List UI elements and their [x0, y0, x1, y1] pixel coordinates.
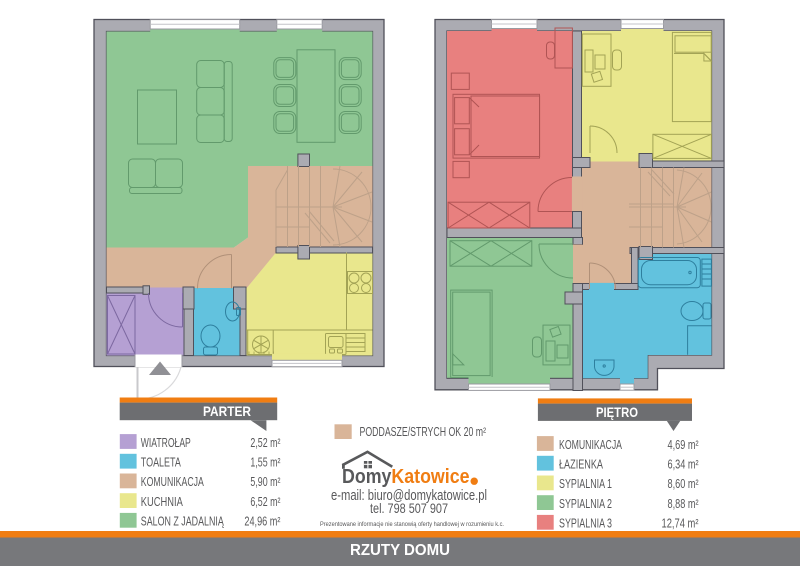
svg-text:PARTER: PARTER — [203, 403, 251, 419]
svg-text:6,34 m²: 6,34 m² — [668, 457, 700, 472]
svg-text:KUCHNIA: KUCHNIA — [141, 494, 183, 509]
svg-text:DomyKatowice: DomyKatowice — [342, 466, 470, 488]
svg-text:KOMUNIKACJA: KOMUNIKACJA — [141, 474, 204, 489]
svg-text:8,60 m²: 8,60 m² — [668, 476, 700, 491]
svg-text:Prezentowane informacje nie st: Prezentowane informacje nie stanowią ofe… — [320, 521, 504, 528]
svg-text:4,69 m²: 4,69 m² — [668, 437, 700, 452]
svg-text:SYPIALNIA 2: SYPIALNIA 2 — [559, 496, 612, 511]
svg-text:2,52 m²: 2,52 m² — [250, 435, 281, 450]
svg-text:24,96 m²: 24,96 m² — [244, 514, 281, 529]
svg-text:8,88 m²: 8,88 m² — [668, 496, 700, 511]
svg-text:SYPIALNIA 3: SYPIALNIA 3 — [559, 516, 612, 531]
svg-text:ŁAZIENKA: ŁAZIENKA — [559, 457, 603, 472]
svg-text:1,55 m²: 1,55 m² — [250, 455, 281, 470]
svg-text:SYPIALNIA 1: SYPIALNIA 1 — [559, 476, 612, 491]
svg-text:TOALETA: TOALETA — [141, 455, 181, 470]
svg-text:PODDASZE/STRYCH OK 20 m²: PODDASZE/STRYCH OK 20 m² — [360, 425, 487, 439]
svg-text:12,74 m²: 12,74 m² — [662, 516, 700, 531]
svg-text:SALON Z JADALNIĄ: SALON Z JADALNIĄ — [141, 514, 224, 529]
svg-text:6,52 m²: 6,52 m² — [250, 494, 281, 509]
svg-text:5,90 m²: 5,90 m² — [250, 474, 281, 489]
svg-text:tel. 798 507 907: tel. 798 507 907 — [370, 500, 448, 516]
svg-text:KOMUNIKACJA: KOMUNIKACJA — [559, 437, 622, 452]
svg-text:PIĘTRO: PIĘTRO — [596, 404, 638, 420]
svg-text:RZUTY DOMU: RZUTY DOMU — [350, 542, 450, 559]
svg-text:WIATROŁAP: WIATROŁAP — [141, 435, 191, 450]
